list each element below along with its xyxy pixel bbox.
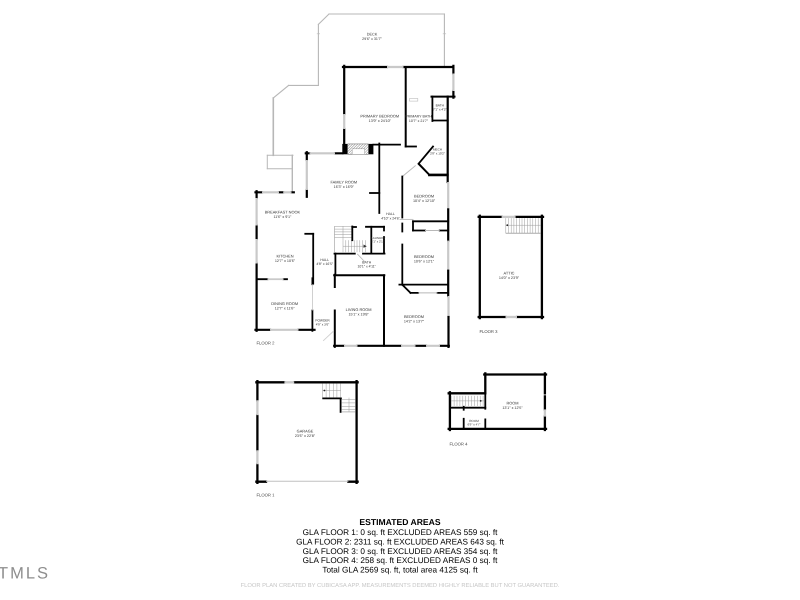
svg-text:FLOOR PLAN CREATED BY CUBICASA: FLOOR PLAN CREATED BY CUBICASA APP. MEAS…: [241, 582, 560, 589]
svg-text:4'10" x 24'6": 4'10" x 24'6": [381, 216, 400, 220]
svg-text:6'9" x 4'7": 6'9" x 4'7": [467, 423, 480, 427]
svg-text:2'8" x 10'2": 2'8" x 10'2": [430, 151, 445, 155]
svg-text:BEDROOM: BEDROOM: [404, 314, 424, 319]
svg-text:GLA FLOOR 3: 0 sq. ft EXCLUDED: GLA FLOOR 3: 0 sq. ft EXCLUDED AREAS 354…: [303, 547, 498, 556]
svg-text:4'8" x 16'5": 4'8" x 16'5": [316, 262, 334, 266]
svg-text:FLOOR 2: FLOOR 2: [257, 341, 276, 346]
svg-text:15'1" x 19'8": 15'1" x 19'8": [348, 313, 369, 317]
svg-text:10'4" x 12'10": 10'4" x 12'10": [413, 199, 436, 203]
svg-text:LIVING ROOM: LIVING ROOM: [346, 307, 372, 312]
svg-text:Total GLA 2569 sq. ft, total a: Total GLA 2569 sq. ft, total area 4125 s…: [322, 565, 478, 574]
svg-text:TMLS: TMLS: [0, 565, 50, 583]
svg-text:DECK: DECK: [367, 33, 378, 37]
svg-text:16'3" x 16'9": 16'3" x 16'9": [334, 185, 355, 189]
svg-text:14'2" x 13'7": 14'2" x 13'7": [404, 320, 425, 324]
svg-text:PRIMARY BEDROOM: PRIMARY BEDROOM: [360, 113, 399, 118]
svg-text:10'1" x 4'11": 10'1" x 4'11": [358, 265, 377, 269]
svg-text:23'6" x 22'8": 23'6" x 22'8": [295, 434, 316, 438]
svg-text:FLOOR 3: FLOOR 3: [480, 329, 499, 334]
svg-text:10'6" x 12'1": 10'6" x 12'1": [414, 260, 435, 264]
svg-text:ROOM: ROOM: [506, 401, 518, 406]
svg-text:12'7" x 10'6": 12'7" x 10'6": [275, 259, 296, 263]
svg-text:ATTIC: ATTIC: [504, 271, 515, 276]
svg-text:7'1" x 4'3": 7'1" x 4'3": [433, 108, 447, 112]
svg-text:5'1" x 2'11": 5'1" x 2'11": [371, 239, 385, 243]
svg-text:FLOOR 1: FLOOR 1: [257, 493, 276, 498]
svg-text:GLA FLOOR 1: 0 sq. ft EXCLUDED: GLA FLOOR 1: 0 sq. ft EXCLUDED AREAS 559…: [303, 528, 498, 537]
svg-text:4'9" x 3'6": 4'9" x 3'6": [316, 323, 330, 327]
svg-text:FAMILY ROOM: FAMILY ROOM: [330, 180, 357, 185]
svg-text:ESTIMATED AREAS: ESTIMATED AREAS: [359, 517, 440, 527]
svg-text:BEDROOM: BEDROOM: [414, 254, 434, 259]
svg-text:13'9" x 24'10": 13'9" x 24'10": [369, 119, 392, 123]
svg-text:13'1" x 12'5": 13'1" x 12'5": [502, 406, 523, 410]
svg-text:GARAGE: GARAGE: [297, 429, 314, 434]
svg-text:11'6" x 9'1": 11'6" x 9'1": [273, 215, 292, 219]
svg-text:GLA FLOOR 4: 258 sq. ft EXCLUD: GLA FLOOR 4: 258 sq. ft EXCLUDED AREAS 0…: [303, 556, 498, 565]
svg-text:GLA FLOOR 2: 2311 sq. ft EXCLU: GLA FLOOR 2: 2311 sq. ft EXCLUDED AREAS …: [296, 538, 505, 547]
svg-text:DINING ROOM: DINING ROOM: [271, 301, 298, 306]
svg-text:FLOOR 4: FLOOR 4: [450, 442, 469, 447]
svg-text:PRIMARY BATH: PRIMARY BATH: [405, 114, 432, 118]
svg-text:BEDROOM: BEDROOM: [414, 194, 434, 199]
svg-text:29'6" x 31'7": 29'6" x 31'7": [362, 37, 382, 41]
svg-text:14'0" x 23'9": 14'0" x 23'9": [499, 276, 520, 280]
svg-text:10'7" x 21'7": 10'7" x 21'7": [409, 119, 429, 123]
svg-text:12'7" x 11'6": 12'7" x 11'6": [275, 307, 296, 311]
svg-text:BREAKFAST NOOK: BREAKFAST NOOK: [265, 210, 301, 215]
svg-text:KITCHEN: KITCHEN: [276, 254, 293, 259]
